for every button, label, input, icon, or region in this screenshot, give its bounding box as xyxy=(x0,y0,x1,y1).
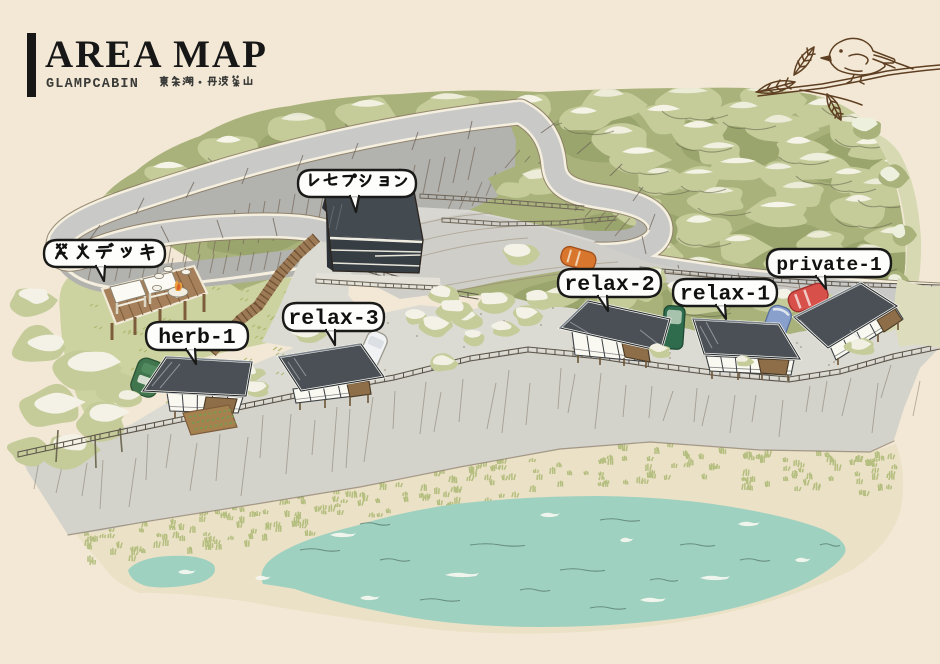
svg-text:herb-1: herb-1 xyxy=(158,326,235,350)
svg-text:relax-2: relax-2 xyxy=(564,273,654,297)
svg-text:AREA MAP: AREA MAP xyxy=(45,33,268,76)
svg-text:GLAMPCABIN: GLAMPCABIN xyxy=(46,77,139,92)
svg-text:private-1: private-1 xyxy=(776,254,881,276)
svg-text:relax-1: relax-1 xyxy=(680,283,770,307)
svg-text:relax-3: relax-3 xyxy=(288,307,378,331)
